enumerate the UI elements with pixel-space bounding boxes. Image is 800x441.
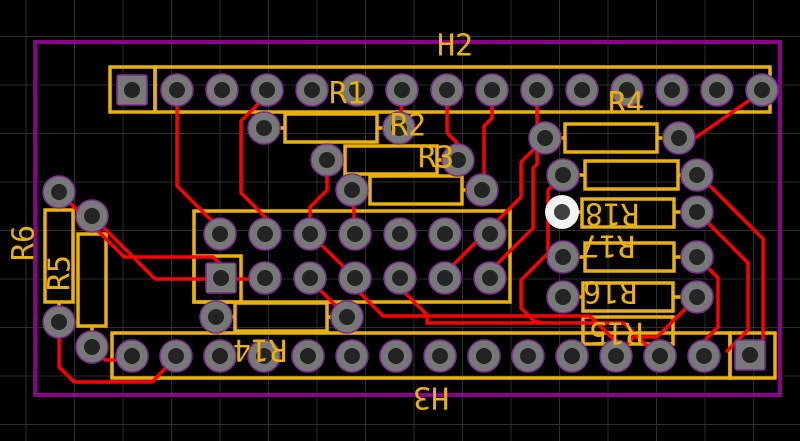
pad-hole (554, 204, 570, 220)
pad-hole (302, 270, 318, 286)
refdes-label-R16[interactable]: R16 (583, 274, 637, 309)
pad-hole (437, 270, 453, 286)
pad-hole (392, 270, 408, 286)
pad-hole (124, 82, 140, 98)
pad-hole (652, 348, 668, 364)
pad-hole (347, 226, 363, 242)
pad-hole (302, 226, 318, 242)
refdes-label-R14[interactable]: R14 (233, 332, 287, 367)
pad-hole (754, 82, 770, 98)
pad-hole (212, 226, 228, 242)
refdes-label-R4[interactable]: R4 (608, 87, 644, 122)
pad-hole (476, 348, 492, 364)
pad-hole (51, 184, 67, 200)
pad-hole (392, 226, 408, 242)
pad-hole (689, 249, 705, 265)
refdes-label-R6[interactable]: R6 (7, 225, 42, 261)
pad-hole (214, 82, 230, 98)
refdes-label-R18[interactable]: R18 (585, 196, 639, 231)
refdes-label-R3[interactable]: R3 (418, 141, 454, 176)
pad-hole (169, 82, 185, 98)
refdes-label-H2[interactable]: H2 (437, 29, 473, 64)
pad-hole (482, 270, 498, 286)
pad-hole (394, 82, 410, 98)
pad-hole (689, 204, 705, 220)
copper-trace[interactable] (177, 95, 220, 234)
pad-hole (304, 82, 320, 98)
pad-hole (555, 249, 571, 265)
pad-hole (482, 226, 498, 242)
pad-hole (474, 182, 490, 198)
pad-hole (520, 348, 536, 364)
pad-hole (439, 82, 455, 98)
pad-hole (344, 182, 360, 198)
pad-hole (671, 130, 687, 146)
pad-hole (432, 348, 448, 364)
pad-hole (84, 339, 100, 355)
pad-hole (300, 348, 316, 364)
pad-hole (344, 348, 360, 364)
pad-hole (347, 270, 363, 286)
pad-hole (696, 348, 712, 364)
pad-hole (208, 309, 224, 325)
pad-hole (529, 82, 545, 98)
pad-hole (555, 289, 571, 305)
pad-hole (168, 348, 184, 364)
resistor-body-R3[interactable] (370, 176, 462, 204)
pad-hole (259, 82, 275, 98)
pad-hole (257, 226, 273, 242)
resistor-body-R-mid[interactable] (585, 161, 678, 189)
refdes-label-R2[interactable]: R2 (390, 109, 426, 144)
resistor-body-R6[interactable] (78, 234, 106, 326)
pad-hole (124, 348, 140, 364)
refdes-label-R1[interactable]: R1 (329, 77, 365, 112)
pad-hole (51, 314, 67, 330)
pcb-canvas[interactable]: H2R1R2R3R4R5R6R14R15R16R17R18H3 (0, 0, 800, 441)
pad-hole (689, 167, 705, 183)
copper-trace[interactable] (92, 216, 265, 279)
refdes-label-R17[interactable]: R17 (581, 228, 635, 263)
pad-hole (319, 152, 335, 168)
pcb-editor-viewport[interactable]: H2R1R2R3R4R5R6R14R15R16R17R18H3 (0, 0, 800, 441)
pad-hole (537, 130, 553, 146)
pad-hole (555, 167, 571, 183)
resistor-body-R14[interactable] (235, 303, 327, 331)
refdes-label-R5[interactable]: R5 (43, 255, 78, 291)
refdes-label-H3[interactable]: H3 (413, 380, 449, 415)
pad-hole (484, 82, 500, 98)
refdes-label-R15[interactable]: R15 (589, 315, 643, 350)
resistor-body-R4[interactable] (565, 124, 657, 152)
pad-hole (664, 82, 680, 98)
pad-hole (437, 226, 453, 242)
pad-hole (574, 82, 590, 98)
pad-hole (388, 348, 404, 364)
pad-hole (709, 82, 725, 98)
pad-hole (564, 348, 580, 364)
resistor-body-R1[interactable] (285, 114, 377, 142)
pad-hole (742, 347, 758, 363)
pad-hole (257, 270, 273, 286)
pad-hole (256, 120, 272, 136)
pad-hole (339, 309, 355, 325)
pad-hole (84, 208, 100, 224)
pad-hole (212, 348, 228, 364)
pad-hole (689, 289, 705, 305)
pad-hole (213, 270, 229, 286)
